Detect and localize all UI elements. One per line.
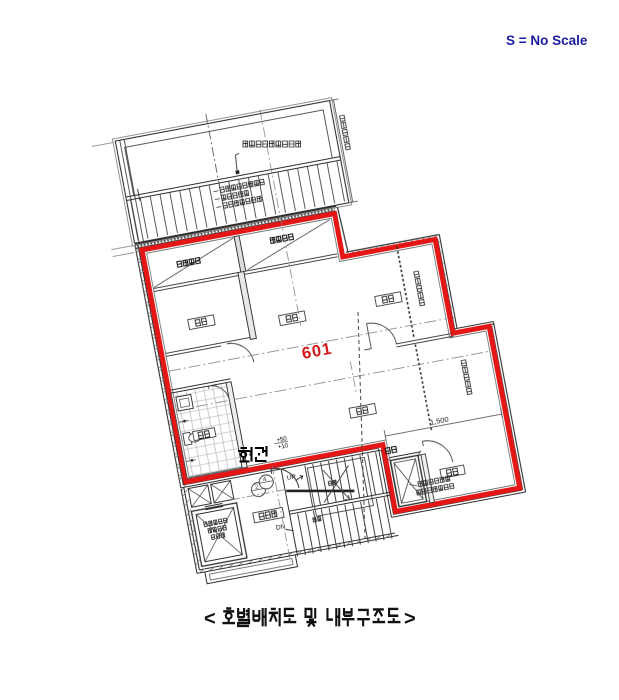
svg-text:>: >: [404, 608, 416, 630]
svg-text:DN: DN: [275, 523, 286, 532]
svg-text:S = No Scale: S = No Scale: [506, 33, 588, 48]
svg-text:1,500: 1,500: [429, 415, 449, 427]
svg-text:+10: +10: [278, 443, 290, 451]
svg-text:<: <: [204, 608, 216, 630]
svg-text:601: 601: [300, 340, 333, 363]
svg-text:UP: UP: [286, 473, 296, 482]
